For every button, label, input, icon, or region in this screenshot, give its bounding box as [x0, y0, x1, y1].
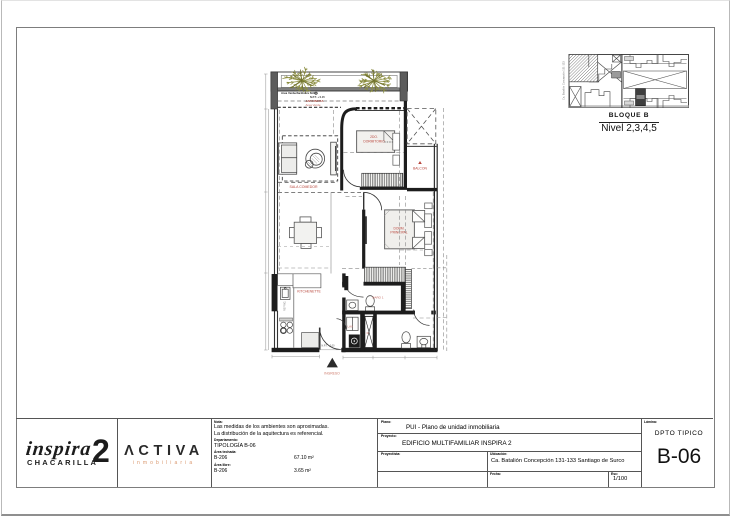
svg-text:N.P.T. + 0.15: N.P.T. + 0.15 — [310, 95, 325, 99]
svg-text:PRINCIPAL: PRINCIPAL — [390, 231, 407, 235]
svg-text:D.: D. — [367, 331, 370, 335]
svg-text:INGRESO: INGRESO — [324, 372, 340, 376]
svg-text:SALA COMEDOR: SALA COMEDOR — [289, 185, 317, 189]
svg-text:Area Verde/Jardinera N.N.N.: Area Verde/Jardinera N.N.N. — [281, 91, 318, 95]
svg-text:LAV.: LAV. — [348, 325, 354, 329]
svg-text:BALCON: BALCON — [413, 166, 427, 170]
svg-text:REFRIG.: REFRIG. — [284, 301, 287, 311]
svg-text:N.P.T. +0.00: N.P.T. +0.00 — [322, 345, 336, 348]
svg-text:Area Verde: Area Verde — [305, 103, 320, 107]
svg-text:DORMITORIO: DORMITORIO — [363, 139, 385, 143]
svg-text:Ca. Batallón Concepción 131-13: Ca. Batallón Concepción 131-133 — [562, 61, 566, 100]
svg-text:BAÑO 1: BAÑO 1 — [373, 294, 384, 299]
svg-text:KITCHENETTE: KITCHENETTE — [297, 289, 321, 293]
